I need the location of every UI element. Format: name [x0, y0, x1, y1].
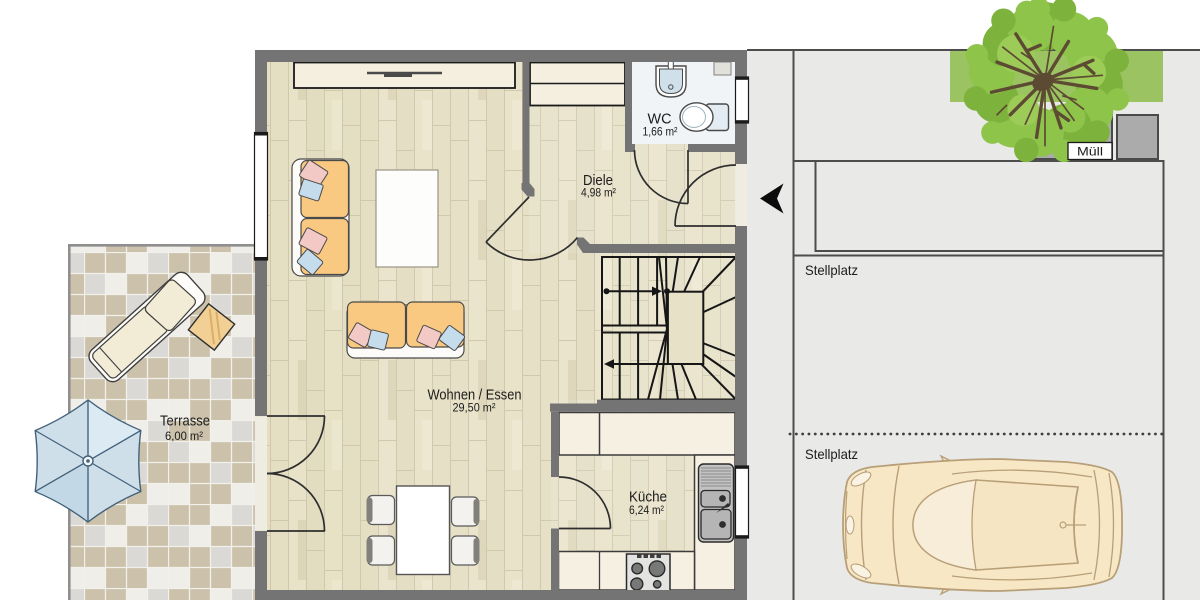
svg-text:Terrasse: Terrasse: [160, 414, 210, 430]
svg-text:Stellplatz: Stellplatz: [805, 446, 858, 462]
svg-text:Müll: Müll: [1077, 145, 1103, 159]
svg-text:6,00 m²: 6,00 m²: [165, 429, 203, 443]
svg-text:Stellplatz: Stellplatz: [805, 262, 858, 278]
svg-text:6,24 m²: 6,24 m²: [629, 503, 664, 517]
svg-text:4,98 m²: 4,98 m²: [581, 186, 616, 200]
svg-text:29,50 m²: 29,50 m²: [453, 401, 496, 415]
svg-text:1,66 m²: 1,66 m²: [643, 125, 678, 139]
